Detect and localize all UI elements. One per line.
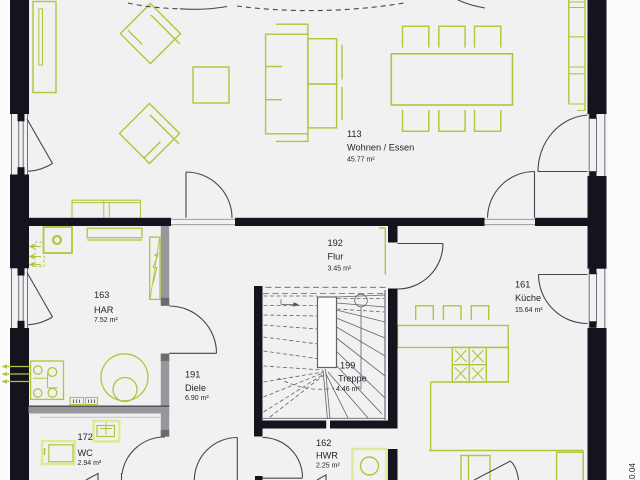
- svg-text:4.46 m²: 4.46 m²: [336, 386, 360, 393]
- svg-text:6.90 m²: 6.90 m²: [185, 395, 209, 402]
- svg-text:HAR: HAR: [94, 305, 114, 315]
- svg-text:10.04: 10.04: [628, 463, 637, 480]
- svg-text:191: 191: [185, 370, 200, 380]
- svg-text:45.77 m²: 45.77 m²: [347, 157, 375, 164]
- svg-text:2.25 m²: 2.25 m²: [316, 463, 340, 470]
- svg-text:Treppe: Treppe: [338, 374, 367, 384]
- svg-text:Flur: Flur: [328, 252, 344, 262]
- svg-text:Küche: Küche: [515, 293, 541, 303]
- svg-text:161: 161: [515, 280, 530, 290]
- svg-text:199: 199: [340, 361, 355, 371]
- svg-text:172: 172: [78, 432, 93, 442]
- svg-text:163: 163: [94, 290, 109, 300]
- svg-text:3.45 m²: 3.45 m²: [328, 266, 352, 273]
- svg-text:Wohnen / Essen: Wohnen / Essen: [347, 143, 414, 153]
- svg-text:WC: WC: [78, 448, 94, 458]
- svg-text:HWR: HWR: [316, 451, 338, 461]
- svg-text:192: 192: [328, 238, 343, 248]
- svg-text:113: 113: [347, 129, 362, 139]
- svg-text:7.52 m²: 7.52 m²: [94, 317, 118, 324]
- svg-text:2.94 m²: 2.94 m²: [78, 460, 102, 467]
- svg-text:Diele: Diele: [185, 383, 206, 393]
- svg-text:15.64 m²: 15.64 m²: [515, 307, 543, 314]
- svg-text:162: 162: [316, 438, 331, 448]
